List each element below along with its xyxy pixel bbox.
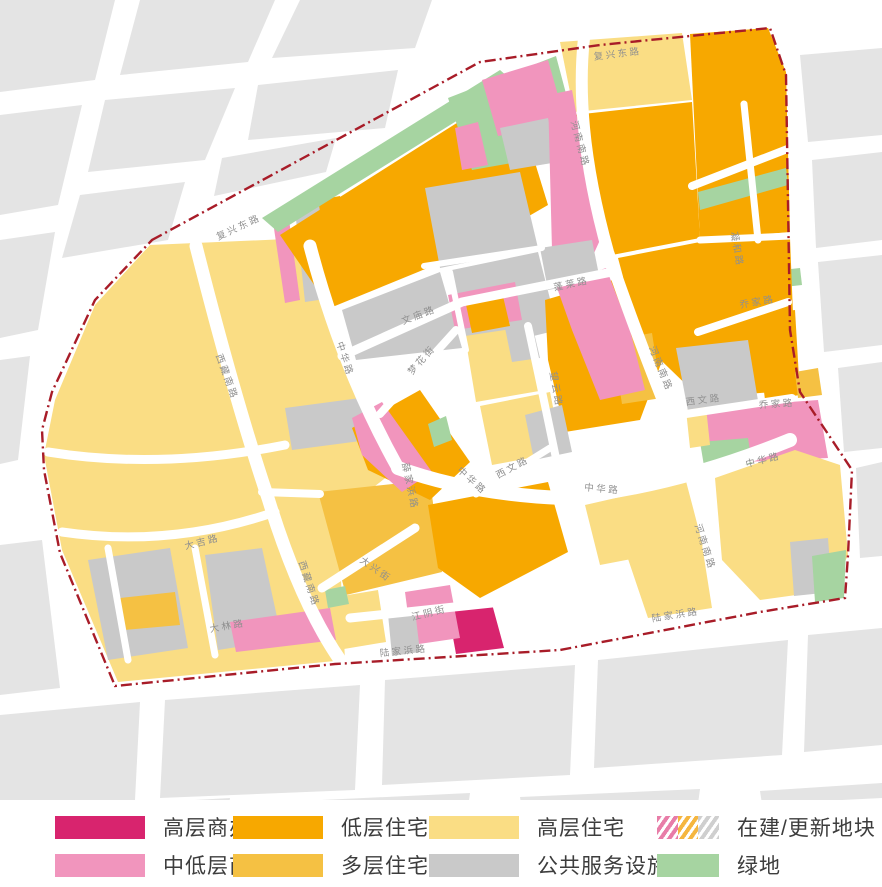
background-block [0, 356, 30, 464]
background-block [804, 628, 882, 752]
hatch-segment [657, 816, 678, 839]
background-block [0, 232, 55, 338]
background-block [812, 152, 882, 248]
background-block [382, 665, 575, 785]
background-block [760, 783, 882, 800]
background-block [88, 88, 235, 172]
background-block [0, 540, 60, 695]
background-block [0, 702, 140, 800]
background-block [272, 0, 432, 58]
page: { "legend": { "items": [ {"label":"高层商办"… [0, 0, 882, 887]
legend: 高层商办低层住宅高层住宅在建/更新地块中低层商办多层住宅公共服务设施绿地 [0, 806, 882, 887]
legend-swatch [233, 854, 323, 877]
background-block [856, 462, 882, 558]
legend-item: 低层住宅 [233, 812, 429, 842]
legend-item: 公共服务设施 [429, 850, 657, 880]
background-block [160, 685, 360, 798]
legend-swatch [55, 854, 145, 877]
legend-item: 中低层商办 [55, 850, 233, 880]
legend-label: 公共服务设施 [537, 850, 669, 880]
hatch-segment [678, 816, 699, 839]
road [700, 236, 790, 240]
legend-swatch [657, 854, 719, 877]
legend-item: 多层住宅 [233, 850, 429, 880]
legend-swatch [233, 816, 323, 839]
background-block [248, 70, 398, 140]
road-label: 复兴东路 [214, 212, 263, 243]
parcel-gr [812, 550, 846, 602]
legend-label: 低层住宅 [341, 812, 429, 842]
background-block [838, 362, 882, 452]
parcel-my [120, 592, 180, 630]
legend-swatch-hatch [657, 816, 719, 839]
legend-item: 在建/更新地块 [657, 812, 882, 842]
legend-label: 多层住宅 [341, 850, 429, 880]
legend-item: 高层商办 [55, 812, 233, 842]
background-block [594, 640, 788, 768]
legend-item: 高层住宅 [429, 812, 657, 842]
legend-swatch [55, 816, 145, 839]
background-block [120, 0, 275, 75]
hatch-segment [698, 816, 719, 839]
background-block [818, 255, 882, 352]
legend-swatch [429, 854, 519, 877]
legend-swatch [429, 816, 519, 839]
road-label: 乔家路 [758, 397, 795, 411]
road [262, 492, 320, 494]
map-canvas: 复兴东路复兴东路西藏南路西藏南路中华路中华路中华路中华路河南南路河南南路河南南路… [0, 0, 882, 800]
background-block [300, 793, 470, 800]
legend-label: 在建/更新地块 [737, 812, 876, 842]
background-block [0, 105, 82, 215]
legend-label: 高层住宅 [537, 812, 625, 842]
background-block [0, 0, 115, 92]
legend-label: 绿地 [737, 850, 781, 880]
background-block [800, 48, 882, 142]
road-label: 陆家浜路 [379, 643, 428, 660]
legend-item: 绿地 [657, 850, 882, 880]
background-block [520, 789, 700, 800]
